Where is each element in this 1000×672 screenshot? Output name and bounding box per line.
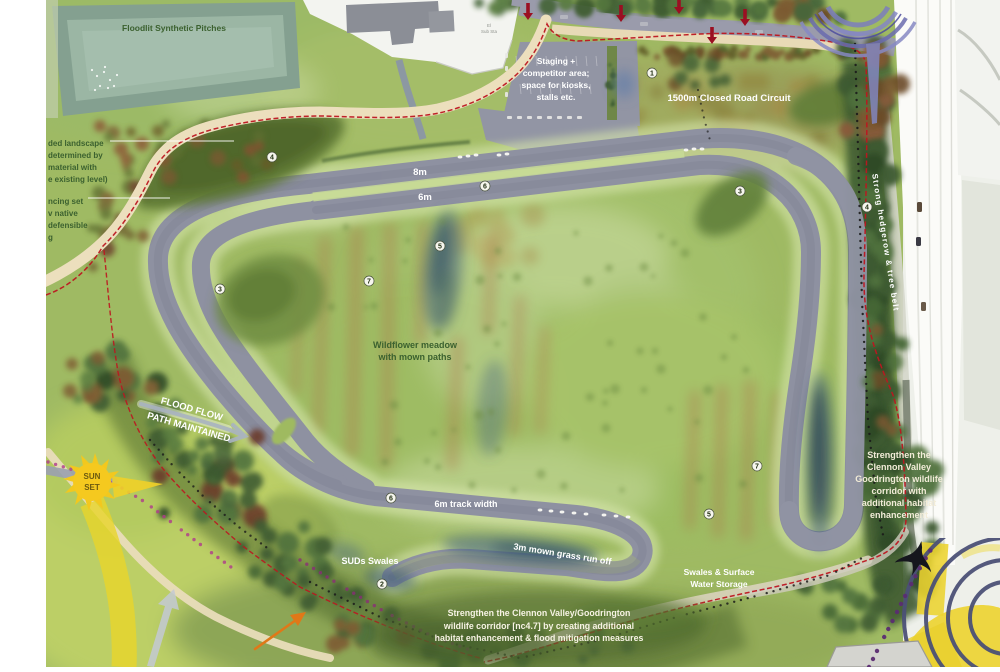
svg-text:6m track width: 6m track width — [434, 499, 497, 509]
svg-text:SET: SET — [84, 483, 100, 492]
svg-text:corridor with: corridor with — [871, 486, 926, 496]
svg-text:ncing set: ncing set — [48, 197, 83, 206]
svg-text:Strengthen the Clennon Valley/: Strengthen the Clennon Valley/Goodringto… — [448, 608, 631, 618]
svg-text:Floodlit Synthetic Pitches: Floodlit Synthetic Pitches — [122, 23, 226, 33]
svg-text:El: El — [487, 23, 491, 28]
svg-text:SUN: SUN — [84, 472, 101, 481]
svg-text:g: g — [48, 233, 53, 242]
svg-text:Clennon Valley: Clennon Valley — [867, 462, 931, 472]
svg-text:e existing level): e existing level) — [48, 175, 108, 184]
svg-text:Sub Sta: Sub Sta — [481, 29, 498, 34]
svg-text:ded landscape: ded landscape — [48, 139, 104, 148]
svg-text:5: 5 — [707, 512, 711, 519]
svg-text:8m: 8m — [413, 167, 427, 178]
svg-text:5: 5 — [438, 244, 442, 251]
svg-text:Water Storage: Water Storage — [690, 579, 748, 589]
svg-text:Goodrington wildlife: Goodrington wildlife — [855, 474, 943, 484]
svg-text:4: 4 — [270, 155, 274, 162]
svg-text:material with: material with — [48, 163, 97, 172]
svg-text:4: 4 — [865, 205, 869, 212]
svg-text:additional habitat: additional habitat — [862, 498, 937, 508]
svg-text:Strengthen the: Strengthen the — [867, 450, 931, 460]
svg-text:determined by: determined by — [48, 151, 103, 160]
svg-text:Wildflower meadow: Wildflower meadow — [373, 340, 458, 350]
svg-text:stalls etc.: stalls etc. — [537, 92, 576, 102]
svg-text:SUDs Swales: SUDs Swales — [341, 556, 398, 566]
svg-text:enhancement: enhancement — [870, 510, 928, 520]
svg-text:7: 7 — [367, 279, 371, 286]
svg-text:defensible: defensible — [48, 221, 88, 230]
svg-text:habitat enhancement & flood mi: habitat enhancement & flood mitigation m… — [435, 633, 644, 643]
svg-text:space for kiosks,: space for kiosks, — [522, 80, 591, 90]
svg-text:Staging +: Staging + — [537, 56, 576, 66]
svg-text:7: 7 — [755, 464, 759, 471]
svg-text:6: 6 — [389, 496, 393, 503]
svg-text:6m: 6m — [418, 192, 432, 203]
svg-text:3: 3 — [738, 189, 742, 196]
svg-text:2: 2 — [380, 582, 384, 589]
svg-text:wildlife corridor [nc4.7] by c: wildlife corridor [nc4.7] by creating ad… — [443, 621, 634, 631]
svg-text:6: 6 — [483, 184, 487, 191]
svg-text:Swales & Surface: Swales & Surface — [684, 567, 755, 577]
svg-text:1500m Closed Road Circuit: 1500m Closed Road Circuit — [667, 93, 791, 104]
svg-text:competitor area;: competitor area; — [523, 68, 590, 78]
svg-text:1: 1 — [650, 71, 654, 78]
svg-text:3: 3 — [218, 287, 222, 294]
svg-text:v native: v native — [48, 209, 78, 218]
svg-text:with mown paths: with mown paths — [378, 352, 452, 362]
